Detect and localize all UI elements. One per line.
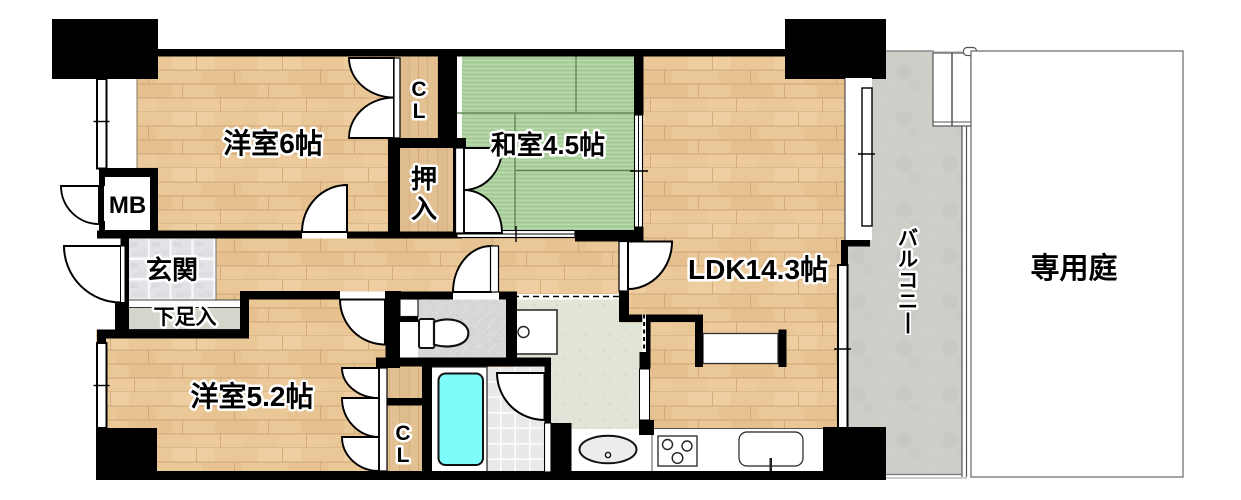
svg-text:MB: MB bbox=[109, 192, 146, 219]
svg-text:LDK14.3帖: LDK14.3帖 bbox=[688, 254, 828, 285]
svg-text:押: 押 bbox=[411, 164, 437, 194]
svg-text:玄関: 玄関 bbox=[146, 255, 198, 285]
svg-text:洋室6帖: 洋室6帖 bbox=[223, 127, 323, 159]
svg-text:C: C bbox=[411, 78, 426, 101]
svg-text:バ: バ bbox=[898, 227, 918, 250]
svg-text:入: 入 bbox=[411, 194, 437, 224]
svg-text:洋室5.2帖: 洋室5.2帖 bbox=[191, 380, 314, 412]
svg-text:C: C bbox=[395, 422, 410, 445]
svg-text:コ: コ bbox=[898, 270, 918, 292]
svg-text:L: L bbox=[413, 100, 426, 123]
svg-text:和室4.5帖: 和室4.5帖 bbox=[491, 130, 605, 160]
svg-text:下足入: 下足入 bbox=[154, 306, 217, 329]
svg-text:ル: ル bbox=[898, 249, 918, 271]
svg-text:L: L bbox=[397, 444, 410, 467]
svg-text:専用庭: 専用庭 bbox=[1030, 251, 1117, 285]
svg-text:ニ: ニ bbox=[898, 291, 918, 313]
